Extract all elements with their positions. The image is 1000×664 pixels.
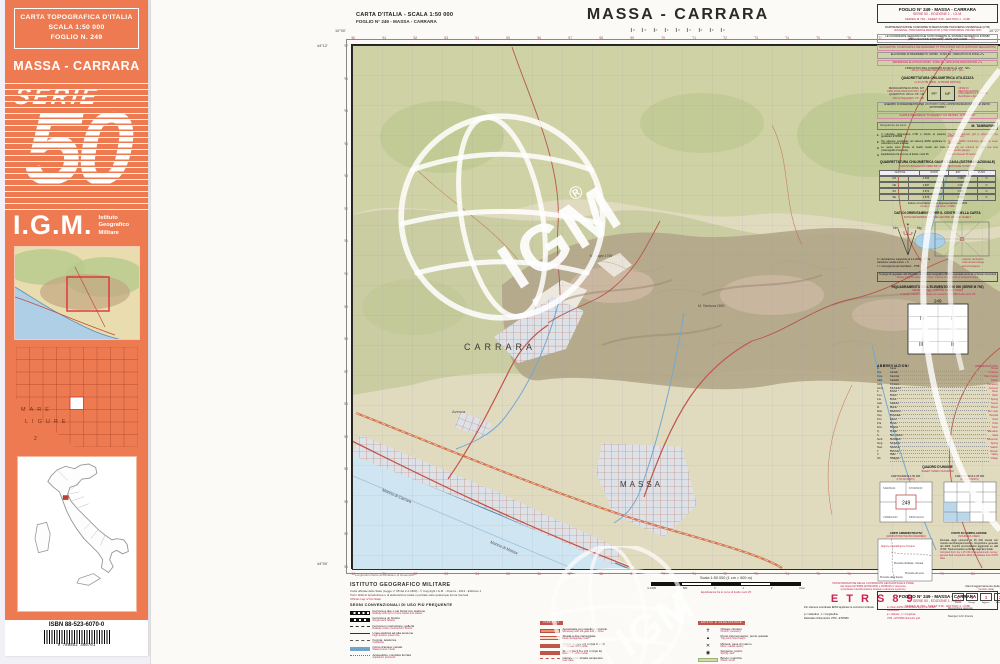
- scale-title: Scala 1:50 000 (1 cm = 500 m): [636, 576, 816, 580]
- legend-symbol: [350, 640, 370, 644]
- legend-group-bar: VIABILITÀ: [540, 621, 563, 625]
- projection-line: REFERENCE ELLIPSOID GRS80 - ZONE 32 - GR…: [877, 60, 998, 66]
- legend-symbol: [350, 647, 370, 651]
- svg-text:249: 249: [934, 298, 942, 303]
- legend-label-en: Aqueduct; penstock: [373, 657, 411, 660]
- legend-row: Strada di oltre 3,5 m (tipi C e D)Road o…: [540, 643, 692, 649]
- legend-symbol: [350, 633, 370, 637]
- cover-title: MASSA - CARRARA: [5, 59, 148, 73]
- projection-line: 100 km SQUARE IDENTIFICATION «PP - NP»: [877, 70, 998, 73]
- legend-row: Acquedotto; condotta forzataAqueduct; pe…: [350, 654, 532, 660]
- sea-label-ligure: LIGURE: [25, 419, 69, 425]
- svg-text:Regione Liguria: Regione Liguria: [881, 545, 898, 548]
- abbreviations-list: C. Casa House C.le Canale Channel C.na C…: [877, 368, 998, 463]
- orientation-row: variazione media annua: + 6'mean annual …: [877, 261, 998, 264]
- sea-label-mare: MARE: [21, 407, 53, 413]
- admin-boundaries: LIMITI AMMINISTRATIVI (ADMINISTRATIVE BO…: [877, 531, 935, 587]
- projection-line: LE COORDINATE GEOGRAFICHE SONO RIFERITE …: [877, 34, 998, 43]
- legend-symbol: [540, 651, 560, 655]
- legend-row: ▴ Punto trigonometrico; punto quotatoTri…: [698, 635, 800, 641]
- corner-lat-tl: 44°12': [317, 44, 328, 48]
- sheet-location-marker: [63, 495, 68, 499]
- declination-diagram: ✶ Nm Ng δ c: [877, 221, 998, 257]
- numbered-note: 2. Per ottenere coordinate nel sistema E…: [877, 141, 998, 147]
- svg-text:Nm: Nm: [893, 226, 899, 230]
- svg-text:Provincia di Lucca: Provincia di Lucca: [905, 572, 924, 575]
- projection-line: ELLISSOIDE DI RIFERIMENTO: GRS80 - FUSO …: [877, 52, 998, 58]
- map-label-avenza: Avenza: [452, 409, 466, 414]
- isbn-text: ISBN 88-523-6070-0: [5, 622, 148, 628]
- map-sheet-paper: CARTA D'ITALIA - SCALA 1:50 000 FOGLIO N…: [150, 0, 1000, 664]
- sheet-division-diagram: 249 IV I III II: [877, 298, 998, 360]
- svg-text:SARZANA: SARZANA: [883, 486, 896, 490]
- legend-symbol: [350, 626, 370, 630]
- orientation-row: c = convergenza del meridiano: - 0°58'gr…: [877, 265, 998, 268]
- index-25k: CARTOGRAFIA 1:25 000 (1:25 000 MAPS): [941, 475, 998, 528]
- svg-text:IV: IV: [920, 316, 925, 322]
- title-degree-ticks: 4'3'2'1'0'1'2'3'4': [631, 28, 725, 32]
- legend-row: Ferrovia a un binarioSingle-track railwa…: [350, 617, 532, 623]
- legend-col-roads: VIABILITÀ Autostrada con casello e svinc…: [540, 610, 692, 664]
- legend-row: Autostrada con casello e svincoloMotorwa…: [540, 628, 692, 634]
- legend-symbol: ◉: [698, 651, 718, 655]
- sheet-index-section: QUADRO D'UNIONE SHEET INDEX DIAGRAM CART…: [877, 466, 998, 528]
- legend-row: Bosco; macchiaWood; scrub: [698, 657, 800, 663]
- sheet-header-left: CARTA D'ITALIA - SCALA 1:50 000 FOGLIO N…: [356, 12, 453, 24]
- official-map-line: Official map of the State: [350, 597, 590, 601]
- legend-row: Funivia, telefericaCableway: [350, 639, 532, 645]
- isbn-block: ISBN 88-523-6070-0 9 788852 360701: [5, 620, 148, 656]
- legend-row: Ferrovia a due o più binari con stazione…: [350, 610, 532, 616]
- abbreviation-row: Vill. Villaggio Village: [877, 458, 998, 462]
- publisher-name: ISTITUTO GEOGRAFICO MILITARE: [350, 582, 590, 588]
- legend-title: SEGNI CONVENZIONALI DI USO PIÙ FREQUENTE: [350, 603, 452, 607]
- map-label-massa: MASSA: [620, 480, 663, 489]
- legend-symbol: ✕: [698, 644, 718, 648]
- legend-col-railways: Ferrovia a due o più binari con stazione…: [350, 610, 532, 661]
- igm-logo-text: I.G.M.: [13, 213, 93, 237]
- legend-row: Corso d'acqua; canaleWatercourse; canal: [350, 646, 532, 652]
- barcode: [44, 630, 110, 644]
- orientation-section: DATI DI ORIENTAMENTO PER IL CENTRO DELLA…: [877, 212, 998, 268]
- barcode-digits: 9 788852 360701: [5, 644, 148, 648]
- svg-text:249: 249: [902, 501, 911, 507]
- svg-text:VIAREGGIO: VIAREGGIO: [883, 515, 898, 519]
- svg-text:Ng: Ng: [917, 226, 922, 230]
- svg-text:PESCAGLIA: PESCAGLIA: [909, 515, 924, 519]
- svg-text:Provincia della Spezia: Provincia della Spezia: [880, 576, 903, 579]
- corner-lon-tl: 10°00': [335, 29, 346, 33]
- index-number: 2: [34, 436, 37, 442]
- projection-section: RAPPRESENTAZIONE CONFORME DI MERCATORE T…: [877, 27, 998, 73]
- sheet-index-grid: MARE LIGURE 2: [16, 347, 138, 447]
- map-label-carrara: CARRARA: [464, 342, 536, 352]
- projection-line: UNIVERSAL TRANSVERSE MERCATOR (UTM) CONF…: [877, 30, 998, 33]
- legend-group-bar: EDIFICI E VEGETAZIONE: [698, 621, 745, 625]
- legend-symbol: [350, 611, 370, 615]
- numbered-note: 4. Equidistanza fra le curve di livello:…: [877, 154, 998, 157]
- svg-text:✶: ✶: [906, 222, 910, 227]
- legend-symbol: [698, 658, 718, 662]
- legend-col-symbols: EDIFICI E VEGETAZIONE ✝ Chiesa; cimitero…: [698, 610, 800, 664]
- sheet-series-line: CARTA D'ITALIA - SCALA 1:50 000: [356, 12, 453, 18]
- italy-locator-map: [17, 456, 137, 612]
- legend-row: ✕ Miniera; cava di marmoMine; marble qua…: [698, 643, 800, 649]
- gauss-rows: NO4 8961 585O NE4 8971 612O SO4 8741 586…: [877, 176, 998, 201]
- sources-used: FONTI DI COMPILAZIONE (SOURCES USED) Der…: [940, 531, 998, 587]
- orientation-row: δ = declinazione magnetica al 1-1-2012: …: [877, 258, 998, 261]
- scale-block: Scala 1:50 000 (1 cm = 500 m) m 10005000…: [636, 576, 816, 594]
- igm-full-name: IstitutoGeograficoMilitare: [99, 215, 130, 237]
- serie-50-block: SERIE 50: [5, 83, 148, 211]
- index-50k: CARTOGRAFIA 1:50 000 (1:50 000 MAPS) 249…: [877, 475, 934, 528]
- point-designation-row: Designazione del punto M. TAMBURINI: [877, 122, 998, 130]
- svg-text:I: I: [951, 316, 952, 322]
- numbered-note: 3. Le quote sono riferite al livello med…: [877, 147, 998, 153]
- svg-text:FIVIZZANO: FIVIZZANO: [909, 486, 923, 490]
- legend-row: Linea elettrica ad alta tensioneHigh-ten…: [350, 632, 532, 638]
- legend-symbol: [540, 629, 560, 633]
- map-label-peak2: M. Tambura 1890: [698, 304, 725, 308]
- svg-text:Regione Toscana: Regione Toscana: [897, 546, 915, 548]
- grid-labels-left: '97'96'95'94'93'92'91'90'89'88'87'86'85'…: [335, 44, 348, 569]
- svg-text:δ: δ: [903, 231, 905, 235]
- svg-text:c: c: [911, 231, 913, 235]
- scale-labels: m 10005000123 km: [647, 587, 805, 590]
- margin-footer-box: FOGLIO N° 249 - MASSA - CARRARA SERIE 50…: [877, 591, 998, 610]
- errors-notice-box: Si prega di segnalare alla Direzione del…: [877, 272, 998, 282]
- scanned-map-sheet: CARTA D'ITALIA - SCALA 1:50 000 FOGLIO N…: [0, 0, 1000, 664]
- igm-logo-row: I.G.M. IstitutoGeograficoMilitare: [5, 213, 148, 237]
- legend-row: Carrareccia, strada campestreCart track: [540, 657, 692, 663]
- legend-row: Strada fra 3,5 e 2,5 m (tipo E)Road 3.5 …: [540, 650, 692, 656]
- utm-grid-section: QUADRETTATURA CHILOMETRICA UTILIZZATA (1…: [877, 77, 998, 130]
- contour-interval-note: Equidistanza fra le curve di livello met…: [636, 591, 816, 594]
- legend-symbol: [540, 636, 560, 640]
- legend-symbol: [540, 644, 560, 648]
- legend-symbol: ▴: [698, 636, 718, 640]
- svg-text:II: II: [951, 342, 954, 348]
- legend-row: Strada a due carreggiateDual carriageway…: [540, 635, 692, 641]
- legend-symbol: [350, 618, 370, 622]
- margin-notes-panel: FOGLIO N° 249 - MASSA - CARRARA SERIE 50…: [877, 4, 998, 662]
- cover-header: CARTA TOPOGRAFICA D'ITALIASCALA 1:50 000…: [14, 8, 139, 49]
- current-sheet-cell: [70, 397, 84, 410]
- legend-row: ◉ Sorgente; pozzoSpring; well: [698, 650, 800, 656]
- 100km-square-cells: PPNP: [927, 86, 955, 101]
- margin-header-box: FOGLIO N° 249 - MASSA - CARRARA SERIE 50…: [877, 4, 998, 23]
- cover-panel: CARTA TOPOGRAFICA D'ITALIASCALA 1:50 000…: [5, 0, 148, 656]
- legend-row: ✝ Chiesa; cimiteroChurch; cemetery: [698, 628, 800, 634]
- page-title: MASSA - CARRARA: [587, 6, 769, 24]
- sheet-lines-section: RIQUADRAMENTO DELL'ELEMENTO 1:50 000 (SE…: [877, 286, 998, 360]
- numbered-note: 1. Il reticolato chilometrico UTM è rife…: [877, 134, 998, 140]
- location-thumbnail-map: [14, 246, 140, 340]
- legend-symbol: [540, 658, 560, 662]
- legend-symbol: [350, 655, 370, 659]
- sheet-number-line: FOGLIO N° 249 - MASSA - CARRARA: [356, 19, 453, 24]
- svg-text:III: III: [919, 342, 923, 348]
- legend-row: Ferrovia in costruzione; galleriaRailway…: [350, 625, 532, 631]
- corner-lat-bl: 44°00': [317, 562, 328, 566]
- projection-line: GEOGRAPHIC COORDINATES ARE REFERRED TO T…: [877, 45, 998, 51]
- svg-text:Provincia di Massa - Carrara: Provincia di Massa - Carrara: [894, 562, 924, 565]
- scale-bar: [651, 582, 801, 587]
- legend-symbol: ✝: [698, 629, 718, 633]
- numbered-notes: 1. Il reticolato chilometrico UTM è rife…: [877, 134, 998, 158]
- publisher-block: ISTITUTO GEOGRAFICO MILITARE Carta uffic…: [350, 582, 590, 601]
- gauss-boaga-section: QUADRETTATURA CHILOMETRICA GAUSS-BOAGA (…: [877, 161, 998, 208]
